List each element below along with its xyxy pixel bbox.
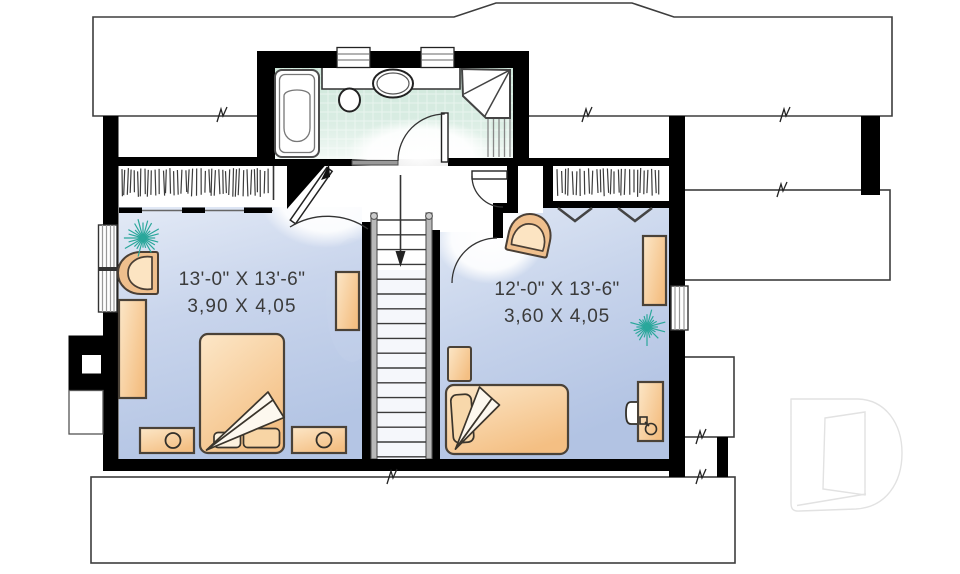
- svg-text:3,90 X 4,05: 3,90 X 4,05: [187, 296, 296, 317]
- svg-text:12'-0" X 13'-6": 12'-0" X 13'-6": [494, 279, 619, 300]
- svg-text:13'-0" X 13'-6": 13'-0" X 13'-6": [179, 269, 306, 290]
- svg-text:3,60 X 4,05: 3,60 X 4,05: [504, 306, 610, 327]
